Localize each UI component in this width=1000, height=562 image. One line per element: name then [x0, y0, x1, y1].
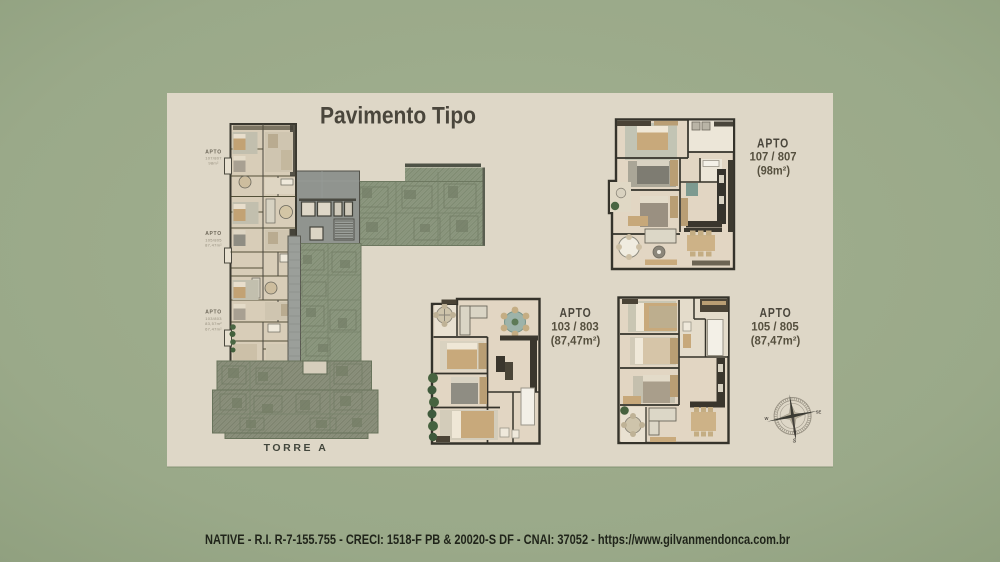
svg-text:Pavimento Tipo: Pavimento Tipo [320, 103, 476, 130]
svg-text:W: W [765, 416, 769, 421]
svg-text:67,47m²: 67,47m² [205, 326, 222, 331]
svg-text:NATIVE - R.I. R-7-155.755 - CR: NATIVE - R.I. R-7-155.755 - CRECI: 1518-… [205, 532, 791, 547]
svg-text:107 / 807: 107 / 807 [750, 152, 797, 164]
svg-text:APTO: APTO [760, 305, 792, 320]
svg-text:APTO: APTO [205, 310, 222, 316]
svg-text:SE: SE [816, 410, 822, 415]
svg-text:(87,47m²): (87,47m²) [751, 336, 801, 348]
svg-text:103 / 803: 103 / 803 [551, 322, 599, 334]
svg-text:87,47m²: 87,47m² [205, 243, 222, 248]
svg-text:TORRE A: TORRE A [264, 442, 329, 454]
svg-text:APTO: APTO [560, 305, 592, 320]
svg-text:105 / 805: 105 / 805 [751, 322, 799, 334]
svg-text:APTO: APTO [757, 136, 789, 151]
svg-text:S: S [793, 439, 797, 445]
svg-text:(87,47m²): (87,47m²) [551, 336, 601, 348]
svg-text:APTO: APTO [205, 231, 222, 237]
svg-text:(98m²): (98m²) [757, 166, 790, 178]
svg-text:98m²: 98m² [208, 161, 219, 166]
